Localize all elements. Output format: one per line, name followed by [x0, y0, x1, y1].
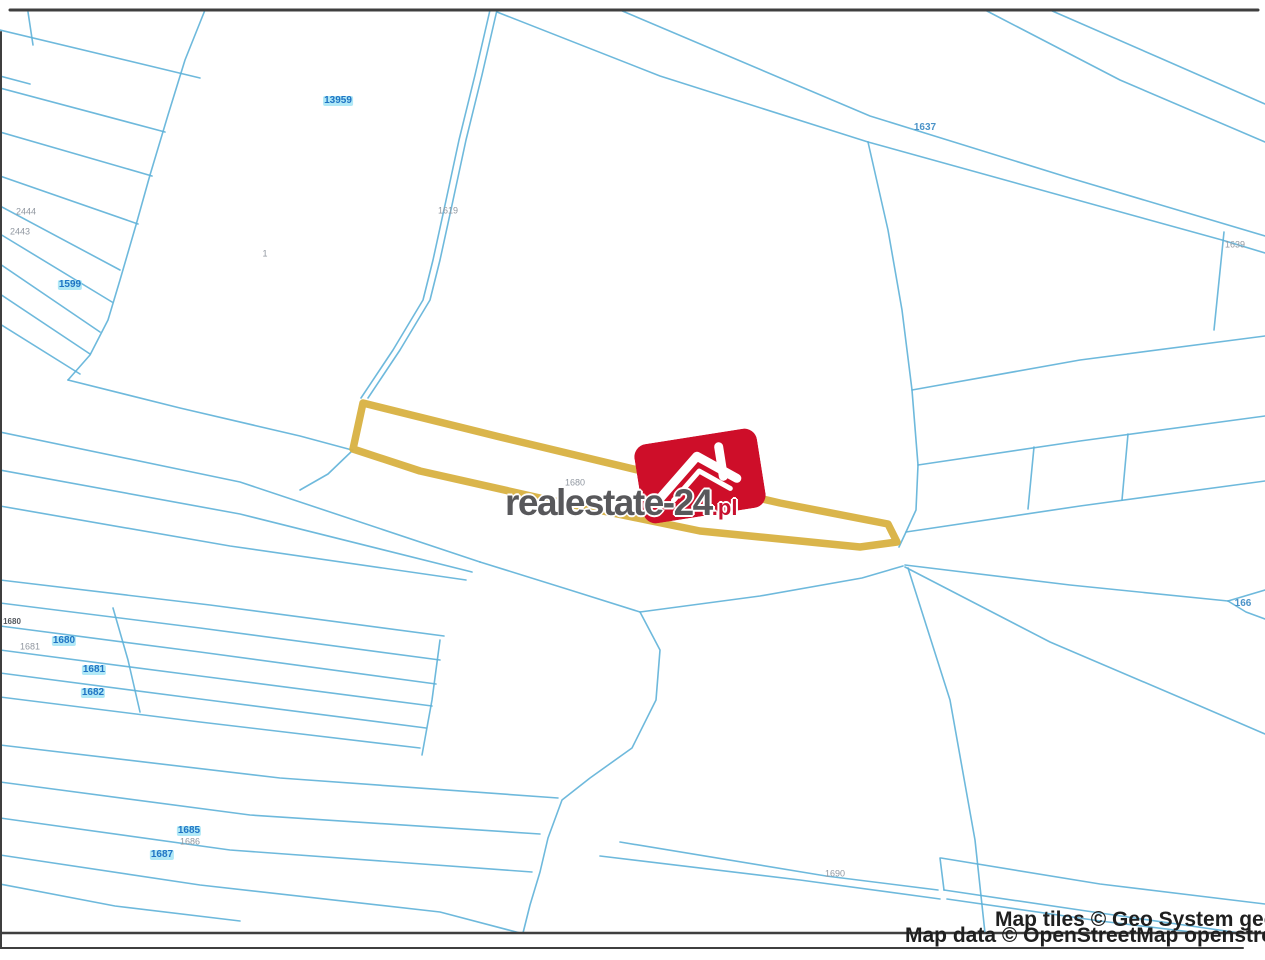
parcel-label: 1682 — [81, 688, 105, 698]
parcel-label: 2444 — [16, 208, 36, 217]
parcel-label: 1639 — [1225, 241, 1245, 250]
cadastral-map: 1395924442443159911619163716391680168016… — [0, 0, 1265, 960]
watermark-brand: realestate-24 — [505, 482, 712, 523]
parcel-label: 1680 — [52, 636, 76, 646]
parcel-labels-layer: 1395924442443159911619163716391680168016… — [0, 0, 1265, 960]
parcel-label: 1690 — [825, 870, 845, 879]
parcel-label: 1681 — [20, 643, 40, 652]
parcel-label: 1681 — [82, 665, 106, 675]
parcel-label: 1 — [262, 250, 267, 259]
watermark-tld: .pl — [712, 495, 738, 520]
parcel-label: 166 — [1235, 599, 1252, 609]
parcel-label: 1686 — [180, 838, 200, 847]
map-data-attribution: Map data © OpenStreetMap openstreet — [905, 924, 1265, 948]
parcel-label: 1599 — [58, 280, 82, 290]
parcel-label: 1685 — [177, 826, 201, 836]
parcel-label: 2443 — [10, 228, 30, 237]
watermark-brand-text: realestate-24.pl — [505, 482, 737, 524]
parcel-label: 1637 — [914, 123, 936, 133]
parcel-label: 1619 — [438, 207, 458, 216]
parcel-label: 1680 — [3, 618, 21, 626]
parcel-label: 1687 — [150, 850, 174, 860]
parcel-label: 13959 — [323, 96, 353, 106]
